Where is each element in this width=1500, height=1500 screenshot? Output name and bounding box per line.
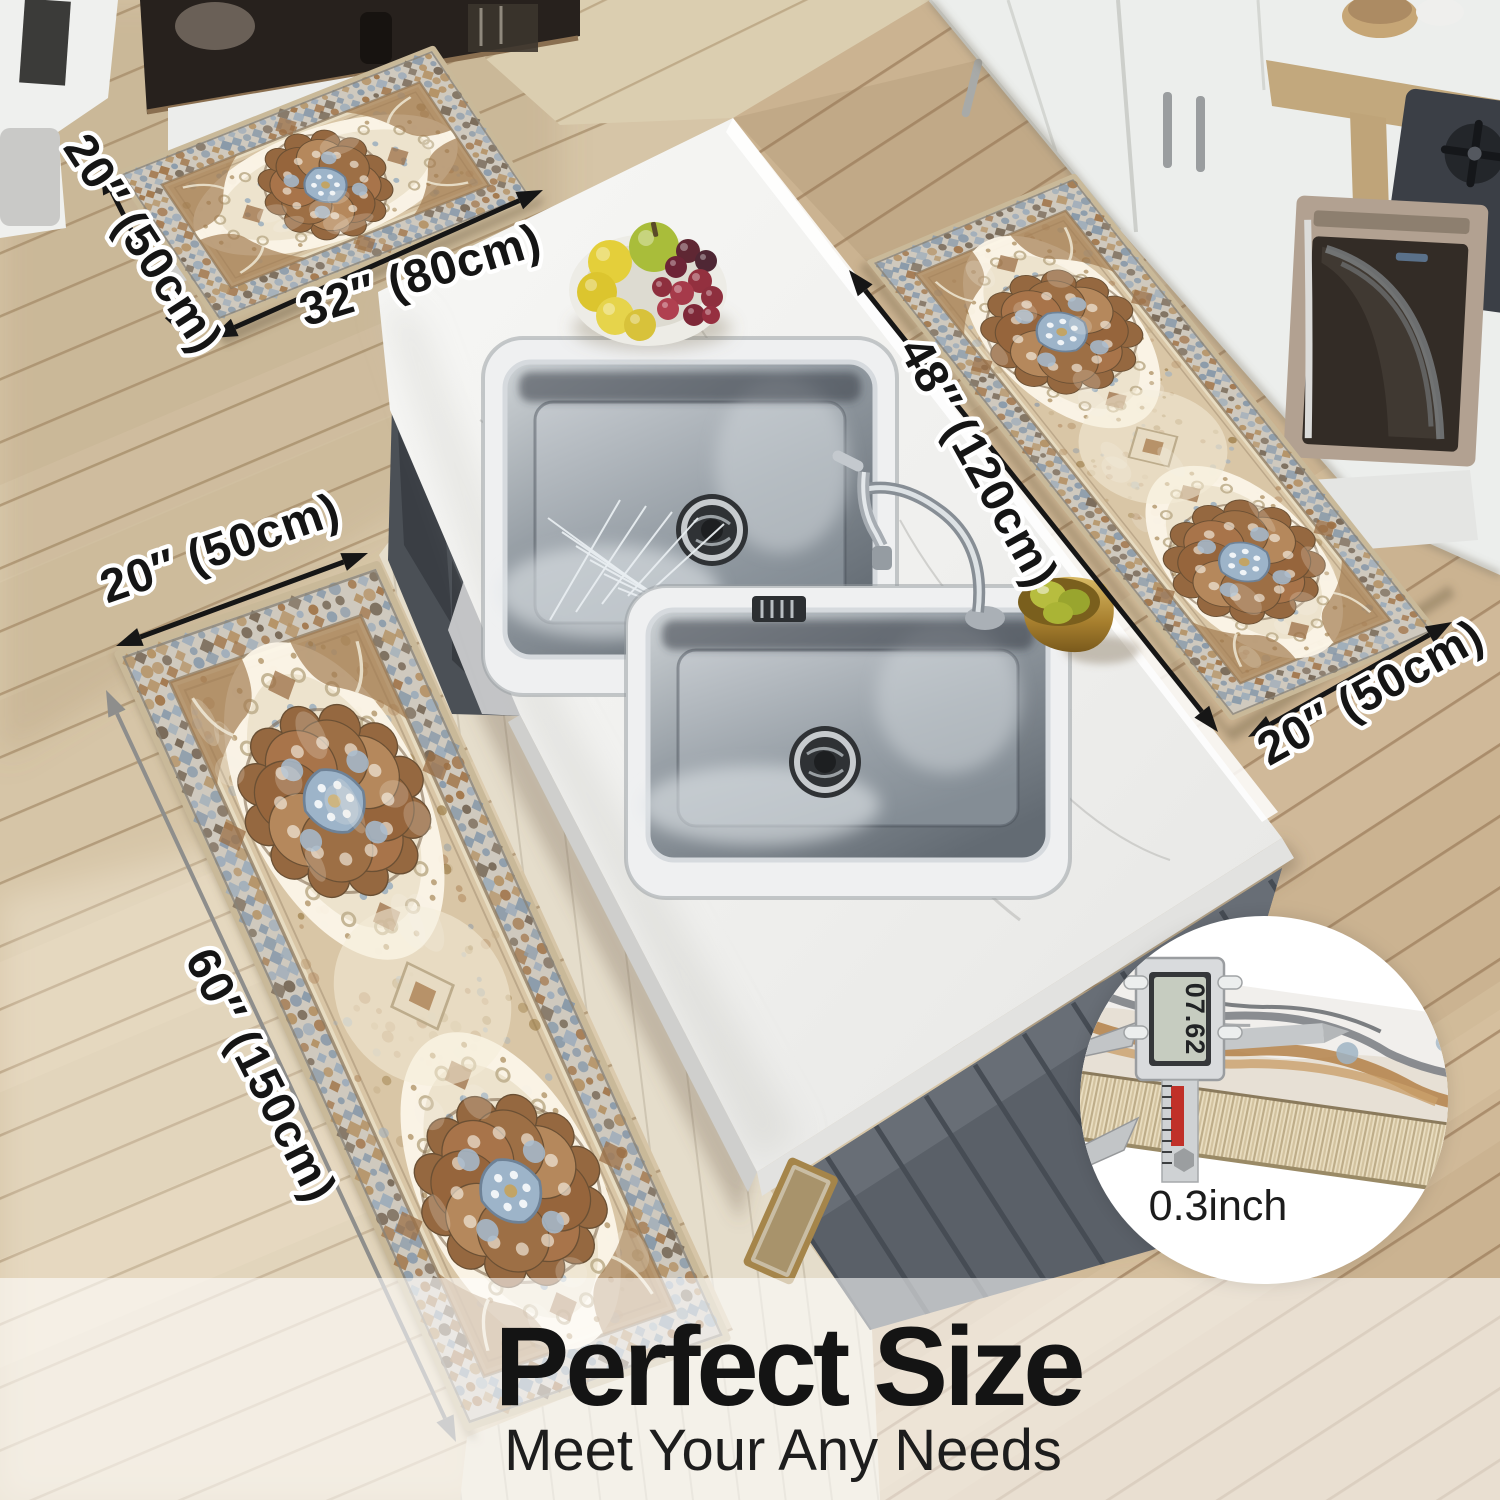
svg-text:Meet Your Any Needs: Meet Your Any Needs [504, 1418, 1062, 1483]
svg-text:07.62: 07.62 [1180, 983, 1210, 1056]
svg-text:0.3inch: 0.3inch [1149, 1182, 1288, 1230]
svg-text:Perfect Size: Perfect Size [495, 1304, 1083, 1429]
